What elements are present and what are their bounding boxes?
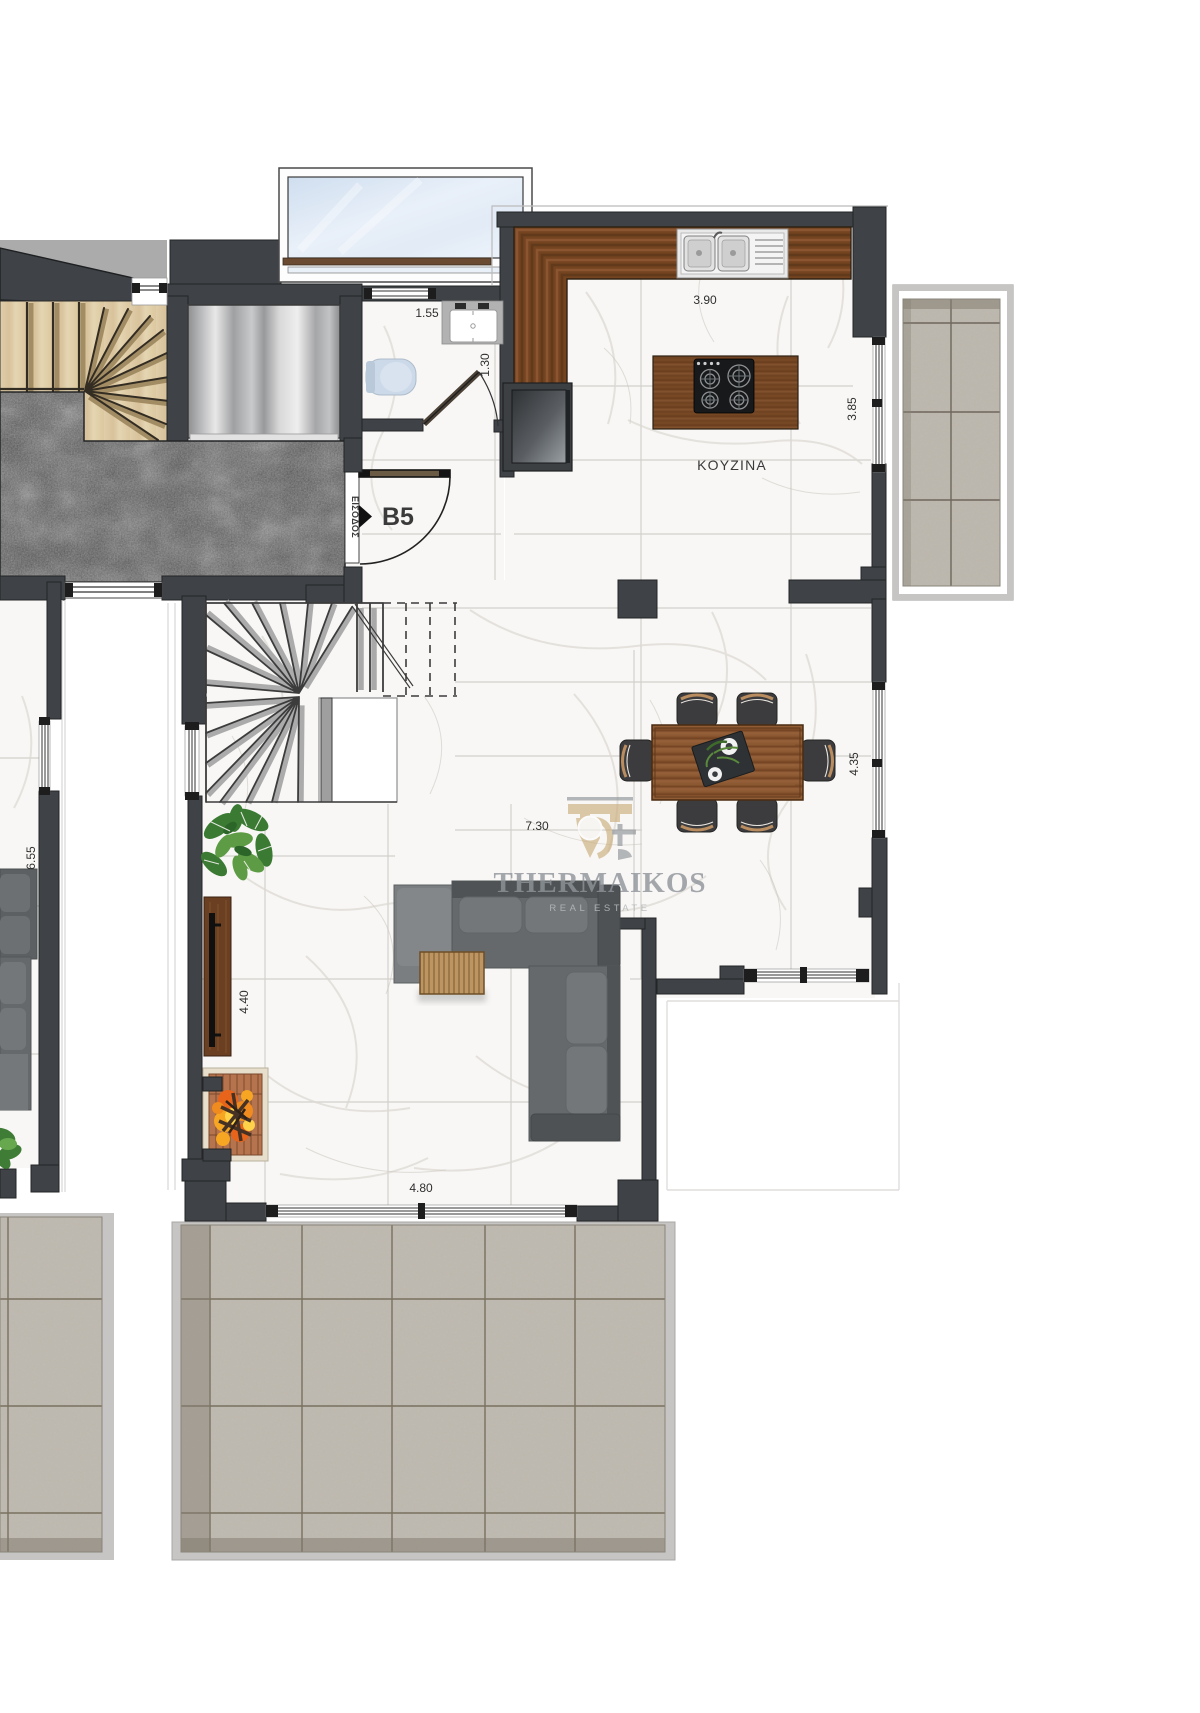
svg-text:ΕΙΣΟΔΟΣ: ΕΙΣΟΔΟΣ — [350, 496, 360, 538]
svg-text:6.55: 6.55 — [24, 846, 38, 870]
svg-text:B5: B5 — [382, 503, 414, 531]
svg-text:4.40: 4.40 — [237, 990, 251, 1014]
svg-text:REAL ESTATE: REAL ESTATE — [549, 903, 650, 914]
svg-text:KOYZINA: KOYZINA — [697, 457, 767, 473]
svg-text:3.85: 3.85 — [845, 397, 859, 421]
svg-text:7.30: 7.30 — [525, 819, 549, 833]
svg-text:1.30: 1.30 — [478, 353, 492, 377]
svg-text:4.35: 4.35 — [847, 752, 861, 776]
svg-text:1.55: 1.55 — [415, 306, 439, 320]
svg-text:3.90: 3.90 — [693, 293, 717, 307]
svg-text:4.80: 4.80 — [409, 1181, 433, 1195]
svg-text:THERMAIKOS: THERMAIKOS — [493, 867, 706, 899]
